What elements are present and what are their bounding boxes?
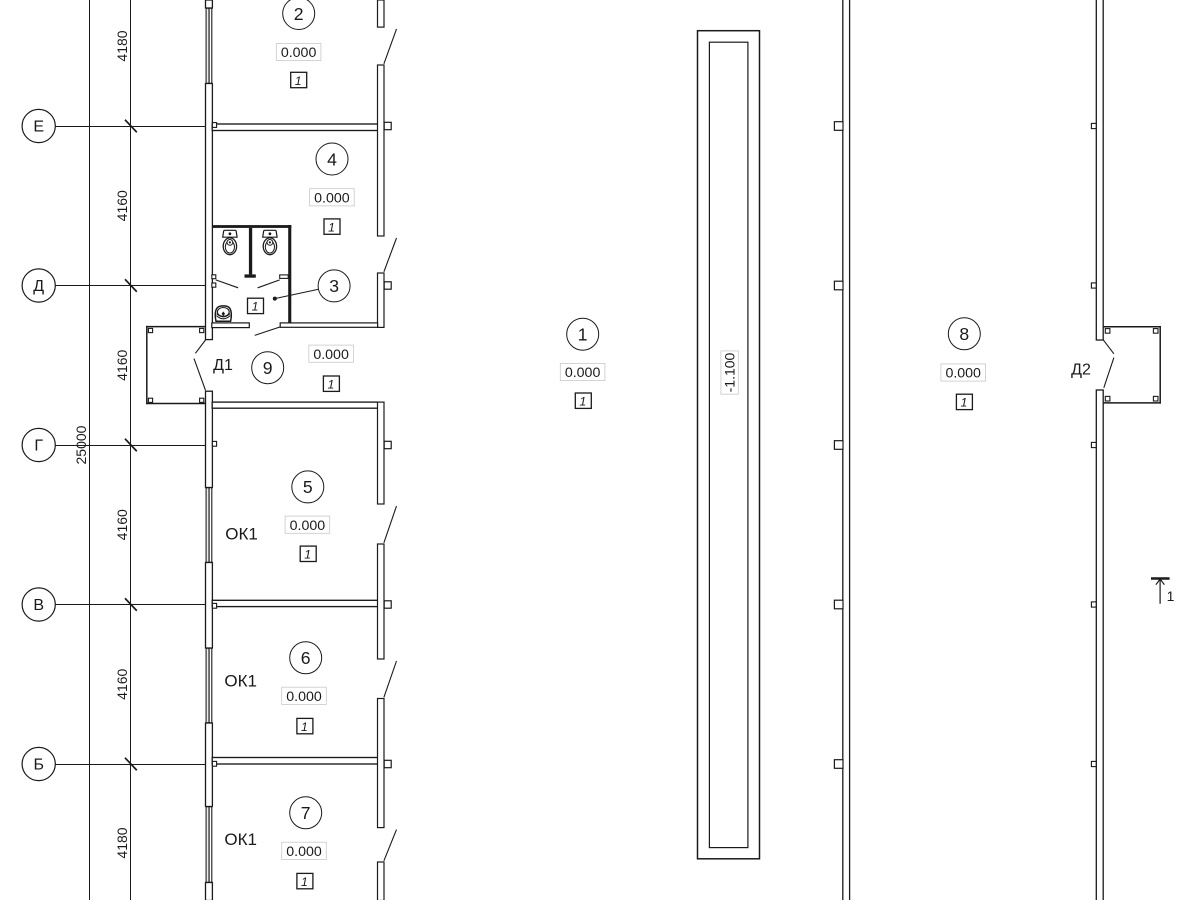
- svg-text:4160: 4160: [114, 349, 130, 380]
- svg-text:0.000: 0.000: [281, 45, 317, 61]
- svg-text:4160: 4160: [114, 668, 130, 699]
- svg-text:0.000: 0.000: [290, 518, 326, 534]
- svg-text:-1.100: -1.100: [722, 352, 738, 392]
- svg-text:0.000: 0.000: [286, 689, 322, 705]
- svg-text:ОК1: ОК1: [225, 525, 258, 544]
- svg-text:ОК1: ОК1: [224, 830, 257, 849]
- svg-text:3: 3: [329, 276, 339, 296]
- svg-text:4: 4: [327, 149, 337, 169]
- svg-text:1: 1: [1167, 588, 1175, 604]
- svg-text:4160: 4160: [114, 190, 130, 221]
- svg-text:Д2: Д2: [1071, 362, 1091, 379]
- svg-text:Д: Д: [33, 278, 44, 295]
- svg-text:1: 1: [327, 378, 334, 392]
- svg-text:0.000: 0.000: [313, 347, 349, 363]
- svg-text:0.000: 0.000: [565, 365, 601, 381]
- svg-text:1: 1: [295, 74, 302, 88]
- svg-text:1: 1: [301, 720, 308, 734]
- svg-text:1: 1: [579, 395, 586, 409]
- svg-text:4160: 4160: [114, 509, 130, 540]
- svg-text:6: 6: [301, 648, 311, 668]
- svg-text:Г: Г: [34, 438, 43, 455]
- svg-text:1: 1: [252, 300, 259, 314]
- svg-text:ОК1: ОК1: [224, 672, 257, 691]
- svg-text:25000: 25000: [73, 425, 89, 464]
- svg-text:9: 9: [263, 358, 273, 378]
- svg-text:1: 1: [578, 325, 588, 345]
- svg-text:4180: 4180: [114, 827, 130, 858]
- svg-text:Е: Е: [33, 119, 44, 136]
- svg-text:2: 2: [294, 4, 304, 24]
- svg-text:7: 7: [301, 803, 311, 823]
- svg-text:Б: Б: [33, 757, 44, 774]
- svg-text:1: 1: [301, 875, 308, 889]
- svg-text:0.000: 0.000: [286, 844, 322, 860]
- svg-text:8: 8: [959, 324, 969, 344]
- svg-text:1: 1: [960, 396, 967, 410]
- svg-text:4180: 4180: [114, 30, 130, 61]
- svg-text:1: 1: [328, 220, 335, 234]
- svg-text:1: 1: [304, 548, 311, 562]
- svg-text:5: 5: [303, 477, 313, 497]
- svg-text:0.000: 0.000: [314, 190, 350, 206]
- svg-text:0.000: 0.000: [945, 366, 981, 382]
- svg-text:Д1: Д1: [213, 357, 233, 374]
- svg-text:В: В: [33, 597, 44, 614]
